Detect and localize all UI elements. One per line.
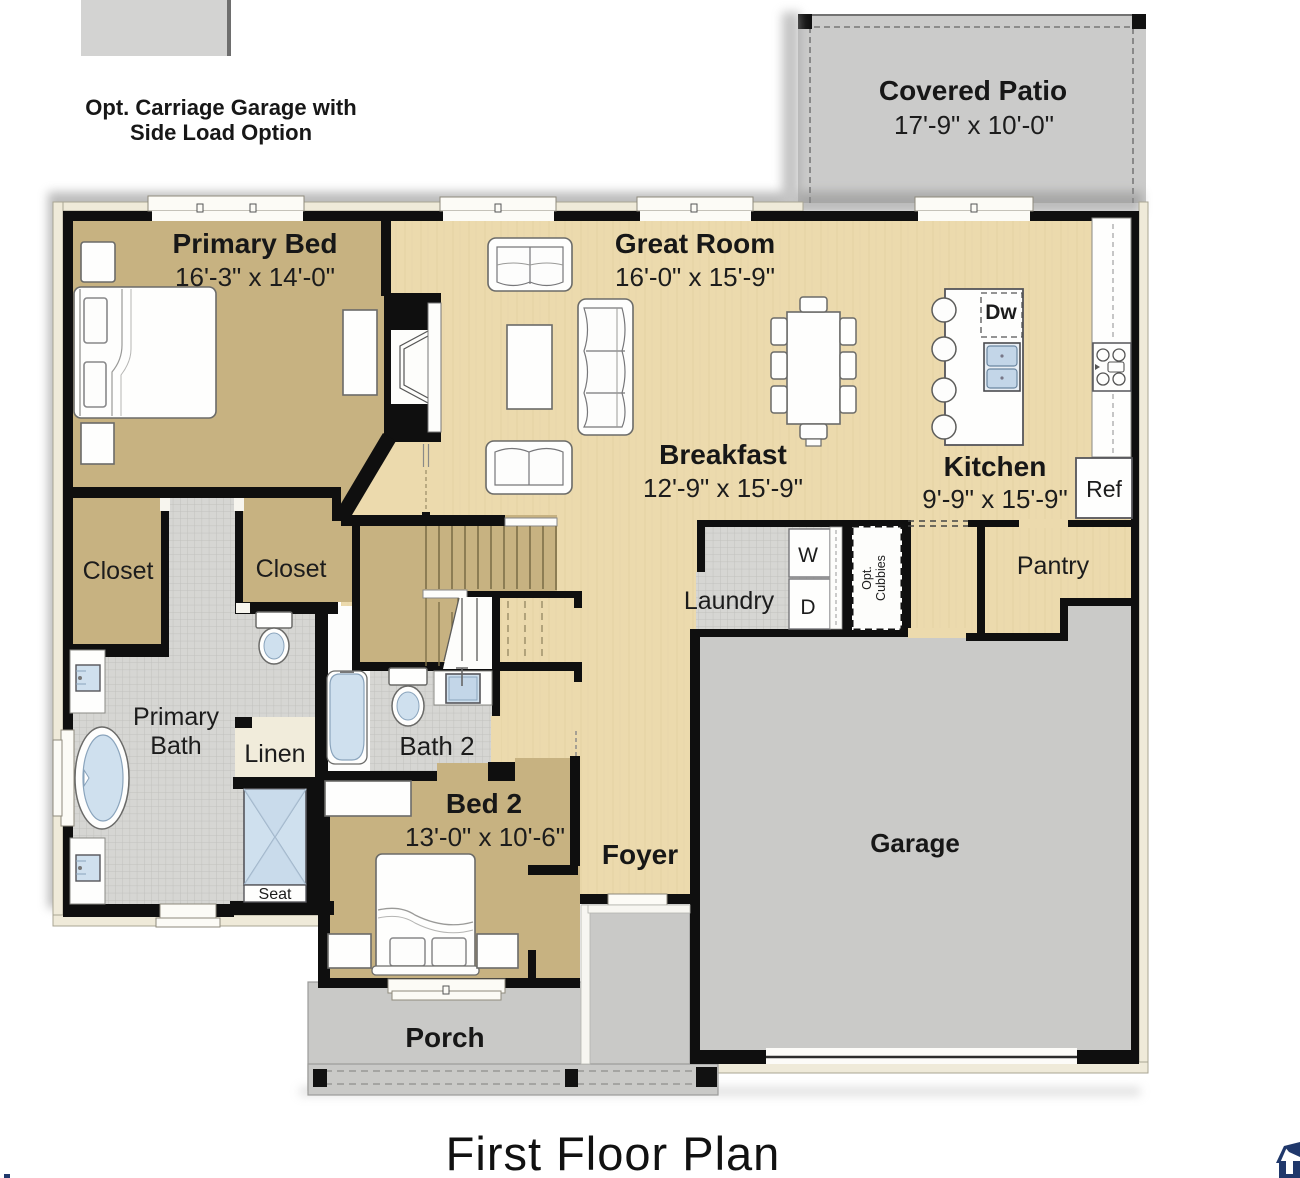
svg-text:Breakfast: Breakfast [659,439,787,470]
svg-text:Garage: Garage [870,828,960,858]
svg-text:Great Room: Great Room [615,228,775,259]
svg-text:Ref: Ref [1086,476,1122,502]
svg-text:Closet: Closet [256,555,327,583]
svg-text:Closet: Closet [83,557,154,585]
svg-text:Seat: Seat [259,886,292,903]
svg-text:Bed 2: Bed 2 [446,788,522,819]
svg-text:Opt. Carriage Garage with: Opt. Carriage Garage with [85,95,356,120]
svg-text:Bath 2: Bath 2 [399,731,474,761]
svg-text:Dw: Dw [985,301,1017,324]
svg-text:Primary: Primary [133,703,220,731]
svg-text:Pantry: Pantry [1017,552,1090,580]
svg-text:Cubbies: Cubbies [874,555,888,601]
svg-text:D: D [800,596,815,619]
svg-text:9'-9" x 15'-9": 9'-9" x 15'-9" [922,484,1067,514]
svg-text:Linen: Linen [244,740,305,768]
svg-text:Covered Patio: Covered Patio [879,75,1067,106]
svg-text:Kitchen: Kitchen [944,451,1047,482]
svg-text:Opt.: Opt. [860,566,874,590]
svg-text:16'-3" x 14'-0": 16'-3" x 14'-0" [175,262,335,292]
svg-text:Primary Bed: Primary Bed [173,228,338,259]
svg-text:Foyer: Foyer [602,839,678,870]
svg-text:13'-0" x 10'-6": 13'-0" x 10'-6" [405,822,565,852]
svg-text:Laundry: Laundry [684,587,775,615]
svg-text:Bath: Bath [150,732,201,760]
svg-text:16'-0" x 15'-9": 16'-0" x 15'-9" [615,262,775,292]
svg-text:First Floor Plan: First Floor Plan [446,1127,781,1178]
svg-text:W: W [798,544,818,567]
svg-text:12'-9" x 15'-9": 12'-9" x 15'-9" [643,473,803,503]
svg-text:17'-9" x 10'-0": 17'-9" x 10'-0" [894,110,1054,140]
svg-text:Porch: Porch [405,1022,484,1053]
svg-text:Side Load Option: Side Load Option [130,120,312,145]
